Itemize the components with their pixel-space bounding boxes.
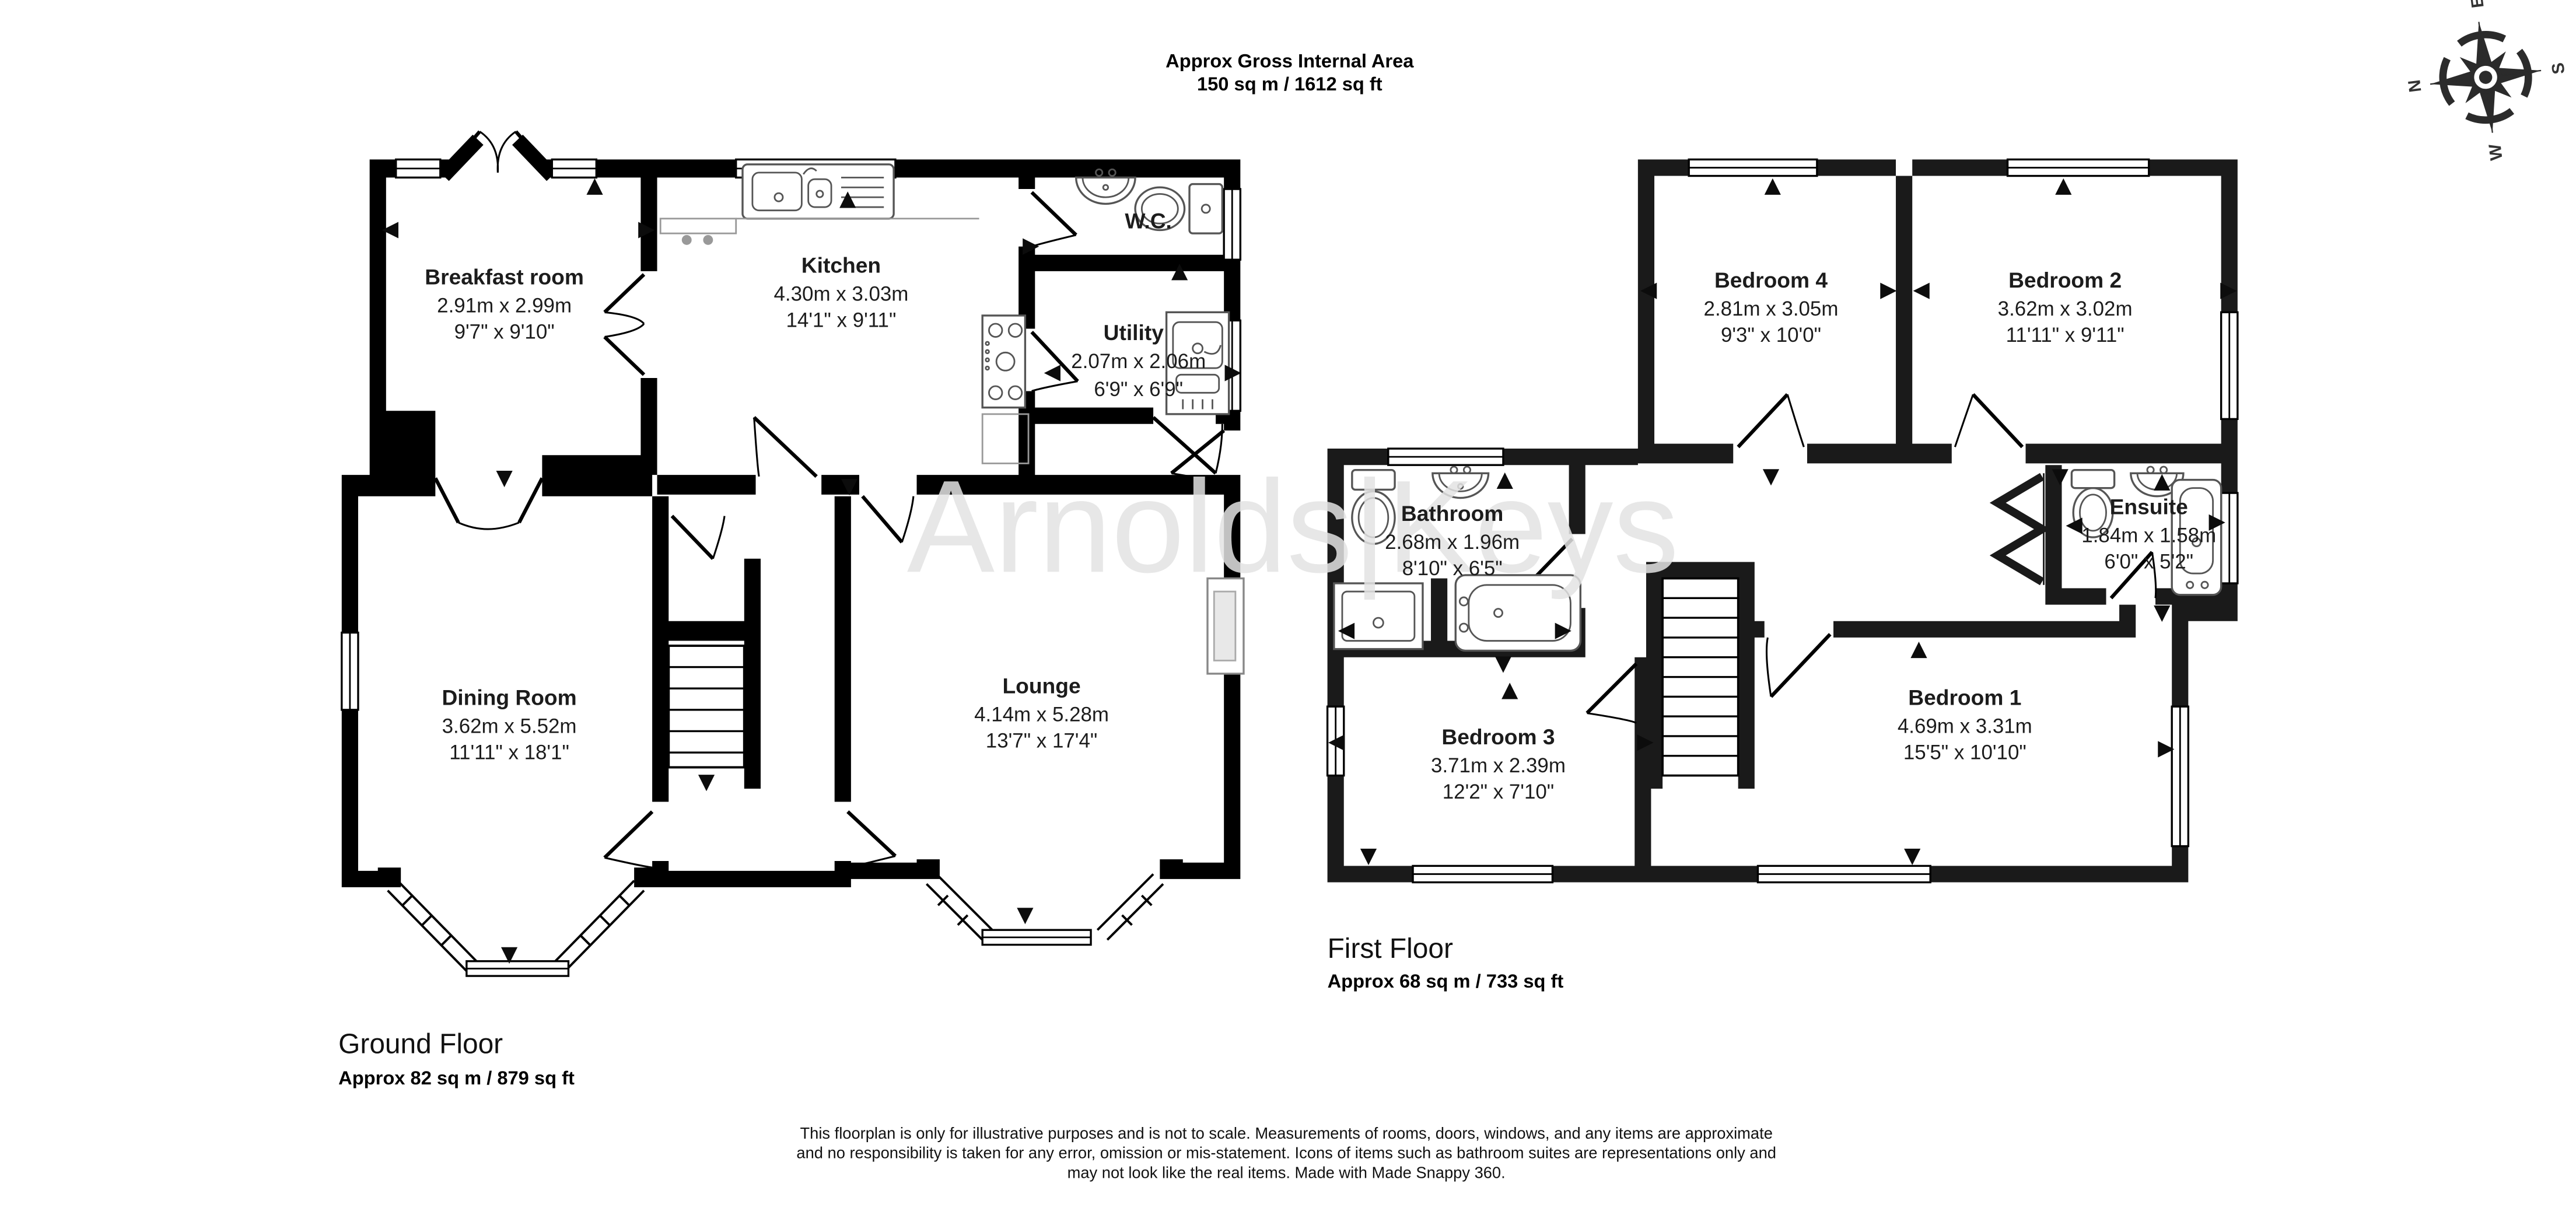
svg-text:15'5" x 10'10": 15'5" x 10'10" [1903, 741, 2027, 764]
svg-text:11'11" x 9'11": 11'11" x 9'11" [2006, 324, 2124, 346]
svg-text:2.68m x 1.96m: 2.68m x 1.96m [1385, 531, 1520, 554]
room-label-bedroom4: Bedroom 4 [1714, 268, 1828, 292]
compass-rose-icon: N E S W [2395, 0, 2576, 170]
compass-n: N [2404, 79, 2425, 93]
svg-text:4.30m x 3.03m: 4.30m x 3.03m [774, 283, 909, 306]
room-label-utility: Utility [1104, 320, 1164, 345]
svg-text:9'3" x 10'0": 9'3" x 10'0" [1721, 324, 1821, 346]
svg-text:6'0" x 5'2": 6'0" x 5'2" [2104, 551, 2193, 573]
first-floor-stairs [1662, 579, 1738, 776]
svg-text:4.14m x 5.28m: 4.14m x 5.28m [974, 703, 1109, 726]
room-label-lounge: Lounge [1002, 674, 1080, 698]
dining-bay-window [388, 881, 644, 976]
lounge-bay-window [926, 874, 1163, 944]
room-label-wc: W.C. [1125, 209, 1172, 233]
svg-text:3.62m x 3.02m: 3.62m x 3.02m [1998, 297, 2133, 320]
header-title-line2: 150 sq m / 1612 sq ft [1197, 73, 1382, 94]
svg-text:4.69m x 3.31m: 4.69m x 3.31m [1898, 715, 2032, 737]
compass-s: S [2548, 61, 2568, 75]
svg-text:12'2" x 7'10": 12'2" x 7'10" [1443, 780, 1554, 803]
svg-text:3.71m x 2.39m: 3.71m x 2.39m [1431, 754, 1566, 777]
disclaimer-line3: may not look like the real items. Made w… [1067, 1163, 1506, 1181]
svg-text:1.84m x 1.58m: 1.84m x 1.58m [2081, 524, 2216, 547]
room-label-breakfast: Breakfast room [425, 264, 584, 289]
floorplan-canvas: Arnolds|Keys Approx Gross Internal Area … [0, 0, 2576, 1211]
room-label-bathroom: Bathroom [1401, 501, 1503, 526]
first-floor-area: Approx 68 sq m / 733 sq ft [1328, 970, 1564, 992]
compass-e: E [2467, 0, 2487, 9]
svg-text:6'9" x 6'9": 6'9" x 6'9" [1094, 378, 1183, 401]
kitchen-sink-icon [743, 164, 894, 219]
room-label-kitchen: Kitchen [801, 253, 881, 278]
room-label-dining: Dining Room [442, 685, 576, 709]
first-floor-labels: Bedroom 4 2.81m x 3.05m 9'3" x 10'0" Bed… [1385, 268, 2216, 803]
hob-icon [982, 316, 1025, 408]
room-label-ensuite: Ensuite [2110, 495, 2188, 519]
watermark: Arnolds|Keys [907, 453, 1679, 600]
room-label-bedroom2: Bedroom 2 [2008, 268, 2122, 292]
ground-floor-title: Ground Floor [338, 1028, 503, 1059]
ground-floor-stairs [668, 646, 744, 767]
svg-text:2.91m x 2.99m: 2.91m x 2.99m [437, 294, 572, 317]
compass-w: W [2486, 143, 2507, 162]
cupboard-zigzag [1998, 473, 2044, 585]
svg-text:9'7" x 9'10": 9'7" x 9'10" [454, 320, 555, 343]
svg-text:13'7" x 17'4": 13'7" x 17'4" [986, 730, 1097, 752]
disclaimer-line2: and no responsibility is taken for any e… [796, 1144, 1776, 1162]
first-floor-title: First Floor [1328, 933, 1453, 964]
room-label-bedroom3: Bedroom 3 [1441, 724, 1555, 749]
svg-text:14'1" x 9'11": 14'1" x 9'11" [786, 309, 897, 332]
disclaimer-line1: This floorplan is only for illustrative … [800, 1124, 1772, 1142]
room-label-bedroom1: Bedroom 1 [1908, 685, 2021, 709]
svg-text:2.07m x 2.06m: 2.07m x 2.06m [1071, 350, 1206, 373]
ground-floor-windows [342, 159, 1241, 709]
svg-text:8'10" x 6'5": 8'10" x 6'5" [1402, 557, 1503, 580]
ground-floor-area: Approx 82 sq m / 879 sq ft [338, 1067, 575, 1088]
svg-text:11'11" x 18'1": 11'11" x 18'1" [449, 741, 569, 764]
svg-text:3.62m x 5.52m: 3.62m x 5.52m [442, 715, 577, 737]
svg-text:2.81m x 3.05m: 2.81m x 3.05m [1704, 297, 1839, 320]
header-title-line1: Approx Gross Internal Area [1165, 50, 1414, 72]
